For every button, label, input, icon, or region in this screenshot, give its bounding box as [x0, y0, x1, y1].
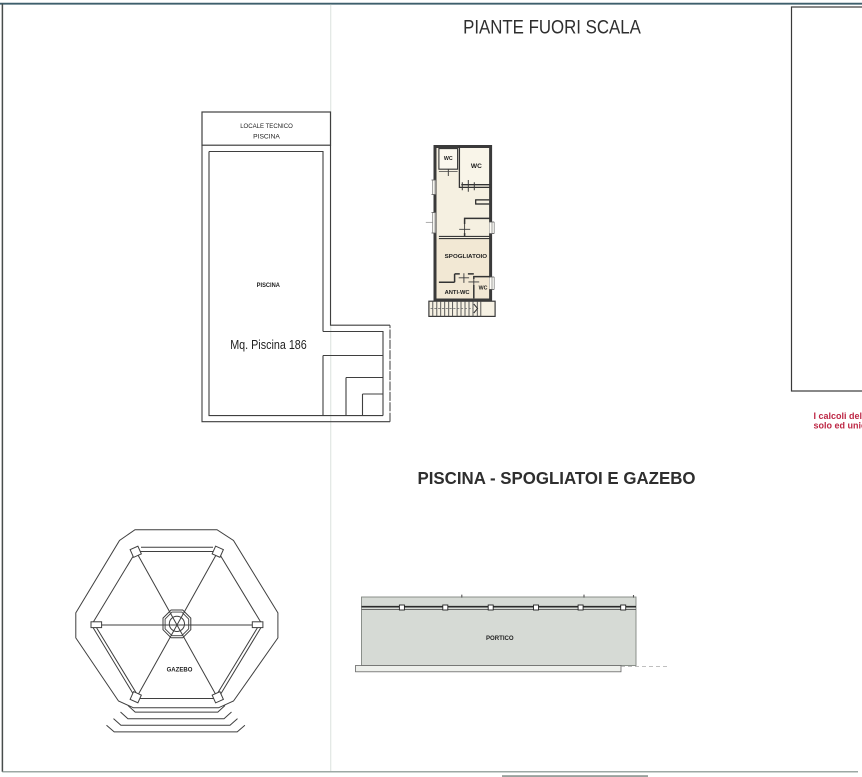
svg-text:PISCINA: PISCINA: [257, 282, 281, 289]
svg-text:SPOGLIATOIO: SPOGLIATOIO: [445, 254, 488, 260]
svg-text:PISCINA - SPOGLIATOI E GAZEBO: PISCINA - SPOGLIATOI E GAZEBO: [418, 468, 696, 488]
svg-text:I calcoli delle sup: I calcoli delle sup: [814, 411, 862, 421]
svg-text:WC: WC: [471, 163, 482, 170]
svg-text:LOCALE TECNICO: LOCALE TECNICO: [240, 123, 293, 130]
svg-text:ANTI-WC: ANTI-WC: [445, 290, 470, 296]
svg-text:PISCINA: PISCINA: [253, 133, 280, 140]
svg-text:PIANTE FUORI SCALA: PIANTE FUORI SCALA: [463, 17, 642, 39]
svg-text:WC: WC: [444, 156, 453, 162]
svg-text:solo ed unicame: solo ed unicame: [814, 421, 862, 431]
svg-text:GAZEBO: GAZEBO: [167, 668, 193, 674]
svg-text:Mq. Piscina 186: Mq. Piscina 186: [230, 338, 307, 352]
svg-text:PORTICO: PORTICO: [486, 635, 514, 642]
svg-text:WC: WC: [479, 286, 488, 292]
